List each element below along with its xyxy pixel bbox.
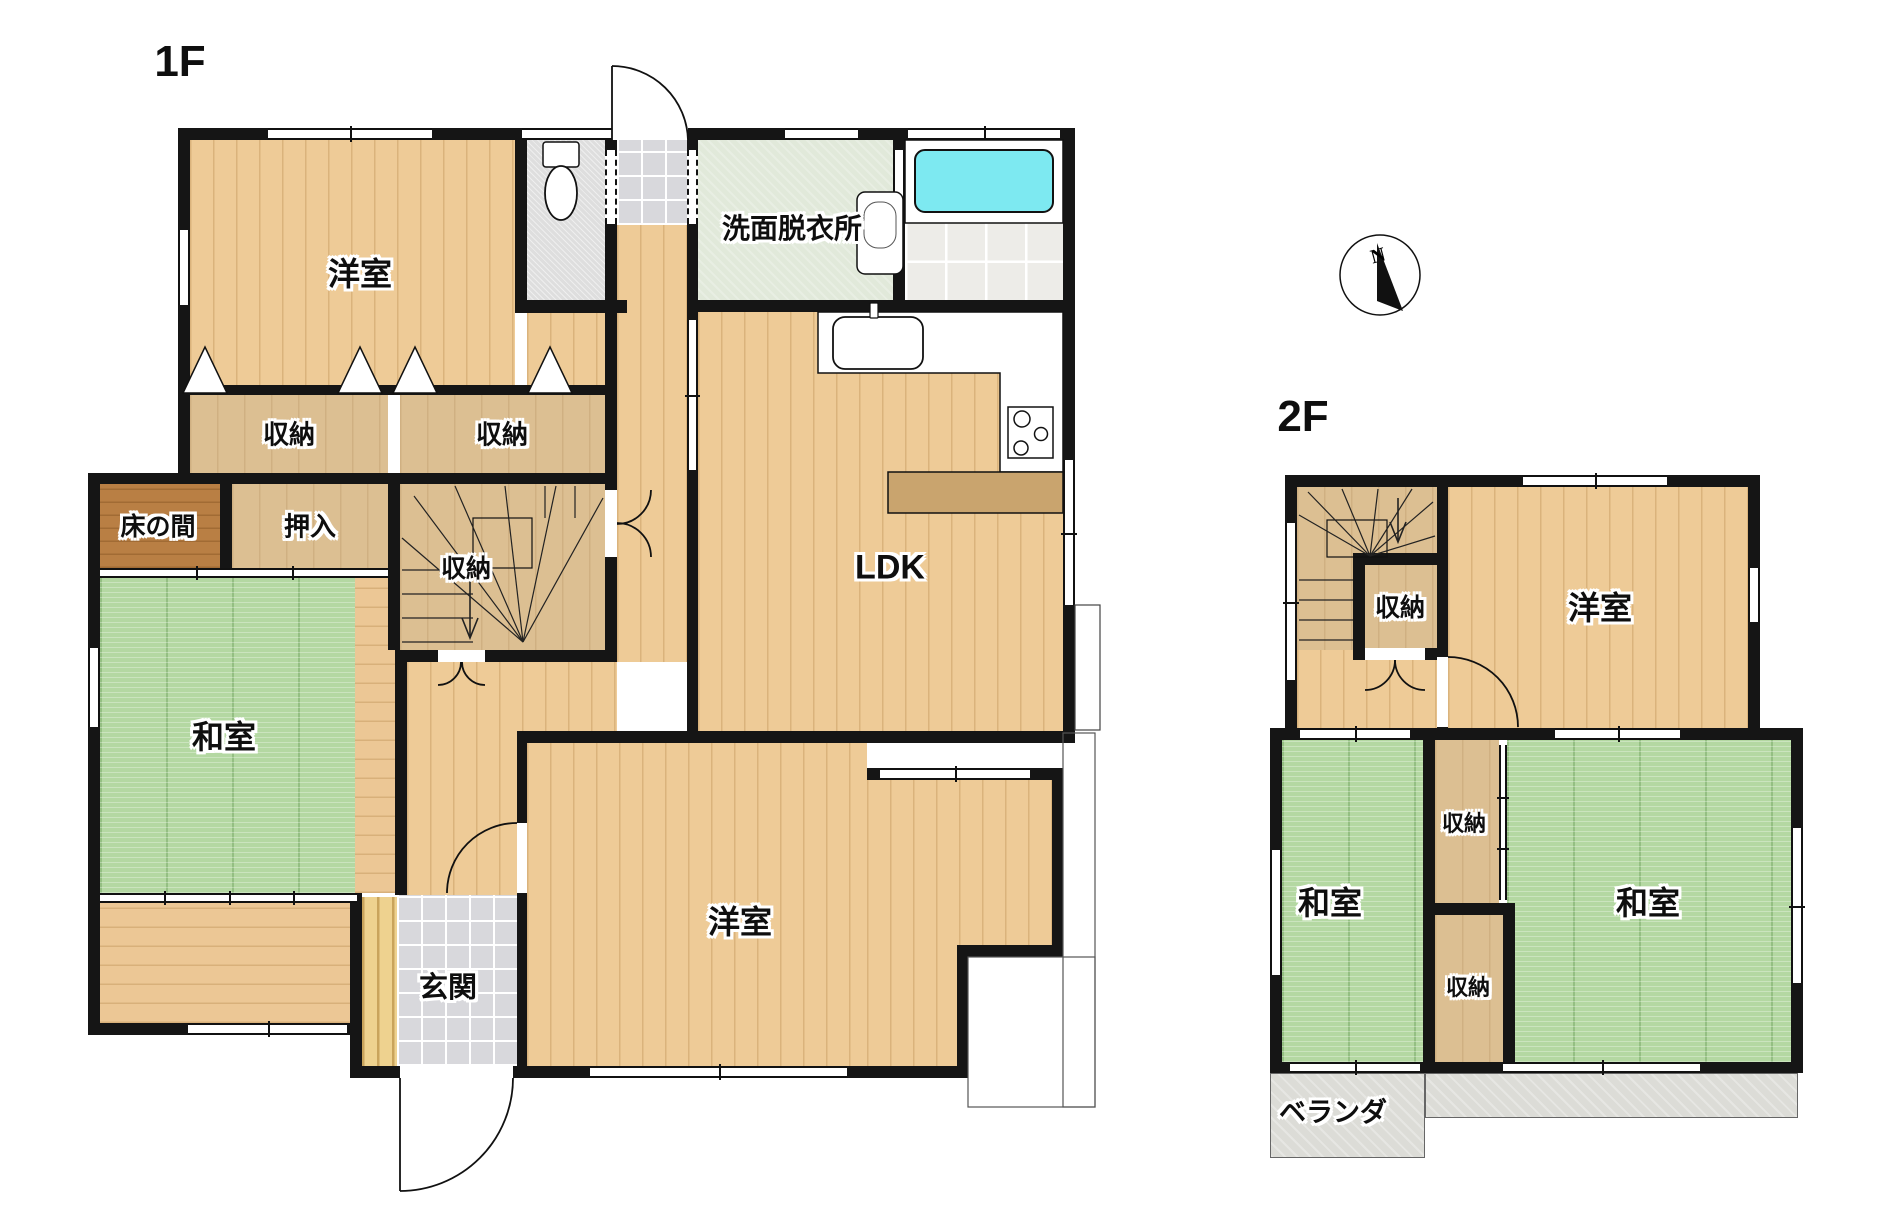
- porch-outline-south: [968, 957, 1095, 1107]
- stair-step-line: [1342, 489, 1370, 556]
- ldk-bay-window: [1075, 605, 1100, 730]
- closet-door-mark: [393, 347, 437, 393]
- porch-outline-east: [1063, 733, 1095, 1107]
- stair-step-line: [523, 498, 603, 642]
- floorplan-canvas: N1F洋室収納収納床の間押入収納和室LDK洗面脱衣所玄関洋室2F収納洋室和室収納…: [0, 0, 1891, 1216]
- stair-step-line: [1370, 502, 1433, 556]
- stove-burner: [1035, 428, 1048, 441]
- room-label: 2F: [1277, 392, 1328, 442]
- door-swing-arc: [617, 523, 651, 557]
- room-label: 和室: [192, 712, 256, 758]
- room-label: ベランダ: [1279, 1091, 1387, 1130]
- door-swing-arc: [1365, 660, 1395, 690]
- stair-step-line: [1308, 492, 1370, 556]
- kitchen-sink: [833, 317, 923, 369]
- room-label: 和室: [1298, 878, 1362, 924]
- room-label: 収納: [263, 415, 315, 452]
- room-label: 収納: [476, 415, 528, 452]
- closet-door-mark: [528, 347, 572, 393]
- room-label: 洋室: [328, 249, 392, 295]
- door-swing-arc: [438, 662, 461, 685]
- closet-door-mark: [338, 347, 382, 393]
- room-label: 押入: [284, 507, 336, 544]
- room-label: LDK: [855, 549, 925, 588]
- door-swing-arc: [1448, 657, 1518, 727]
- stair-step-line: [505, 486, 523, 642]
- room-label: 収納: [1375, 588, 1425, 624]
- door-swing-arc: [400, 1078, 513, 1191]
- room-label: 収納: [441, 549, 491, 585]
- door-swing-arc: [447, 823, 517, 893]
- room-label: 床の間: [120, 507, 195, 543]
- stove-burner: [1014, 411, 1030, 427]
- stair-step-line: [1299, 515, 1370, 556]
- toilet-bowl: [545, 166, 577, 220]
- kitchen-counter-bar: [888, 472, 1063, 513]
- room-label: 1F: [154, 37, 205, 87]
- kitchen-faucet: [870, 303, 878, 318]
- room-label: 洋室: [1568, 583, 1632, 629]
- door-swing-arc: [617, 490, 651, 524]
- door-swing-arc: [612, 66, 688, 140]
- stair-step-line: [1370, 536, 1435, 556]
- bathtub: [915, 150, 1053, 212]
- room-label: 玄関: [419, 964, 477, 1006]
- room-label: 収納: [1442, 806, 1486, 838]
- door-swing-arc: [462, 662, 485, 685]
- room-label: 和室: [1616, 878, 1680, 924]
- room-label: 洗面脱衣所: [722, 207, 862, 247]
- room-label: 洋室: [708, 897, 772, 943]
- toilet-tank: [543, 142, 579, 167]
- room-label: 収納: [1446, 970, 1490, 1002]
- stair-step-line: [523, 486, 556, 642]
- door-swing-arc: [1395, 660, 1425, 690]
- closet-door-mark: [183, 347, 227, 393]
- stove-burner: [1014, 441, 1028, 455]
